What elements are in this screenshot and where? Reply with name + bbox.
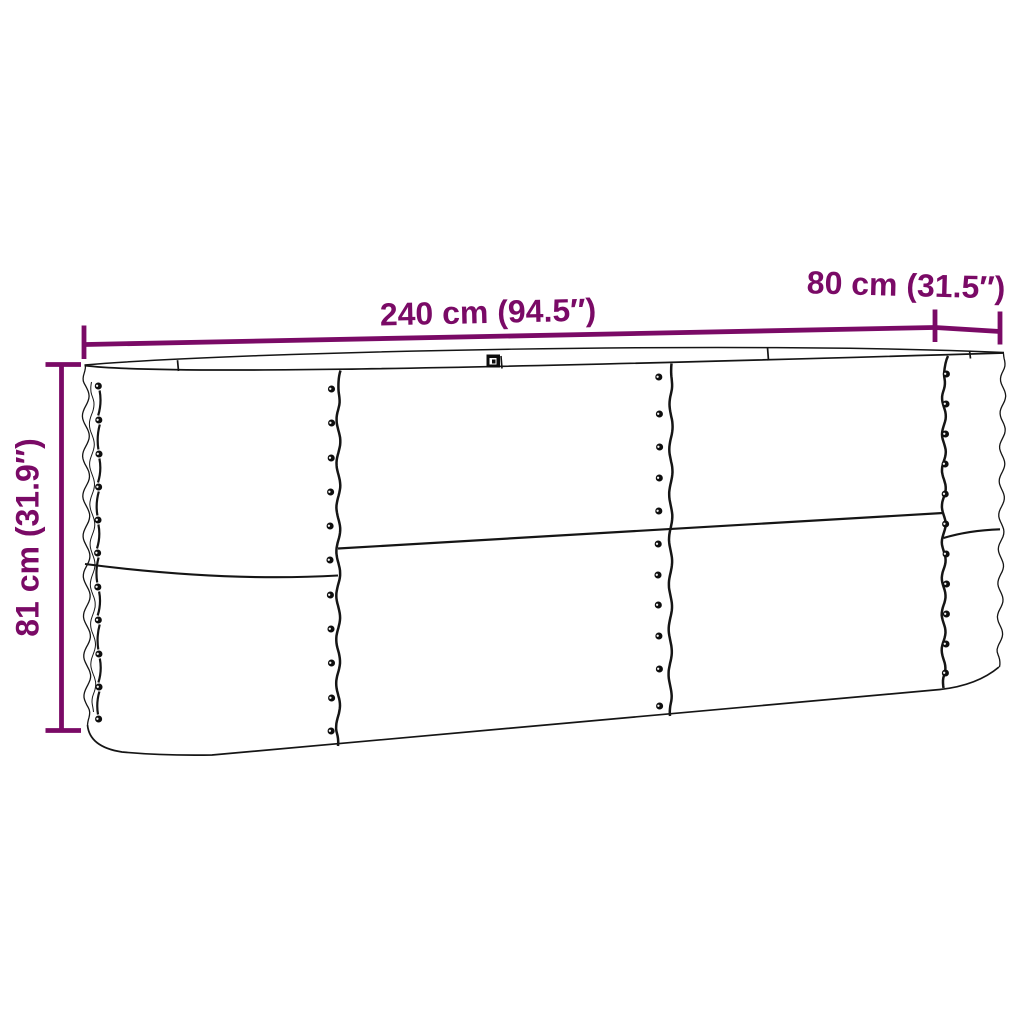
svg-text:240 cm (94.5″): 240 cm (94.5″): [379, 292, 596, 333]
svg-text:80 cm (31.5″): 80 cm (31.5″): [806, 264, 1005, 306]
svg-text:81 cm (31.9″): 81 cm (31.9″): [10, 438, 46, 637]
